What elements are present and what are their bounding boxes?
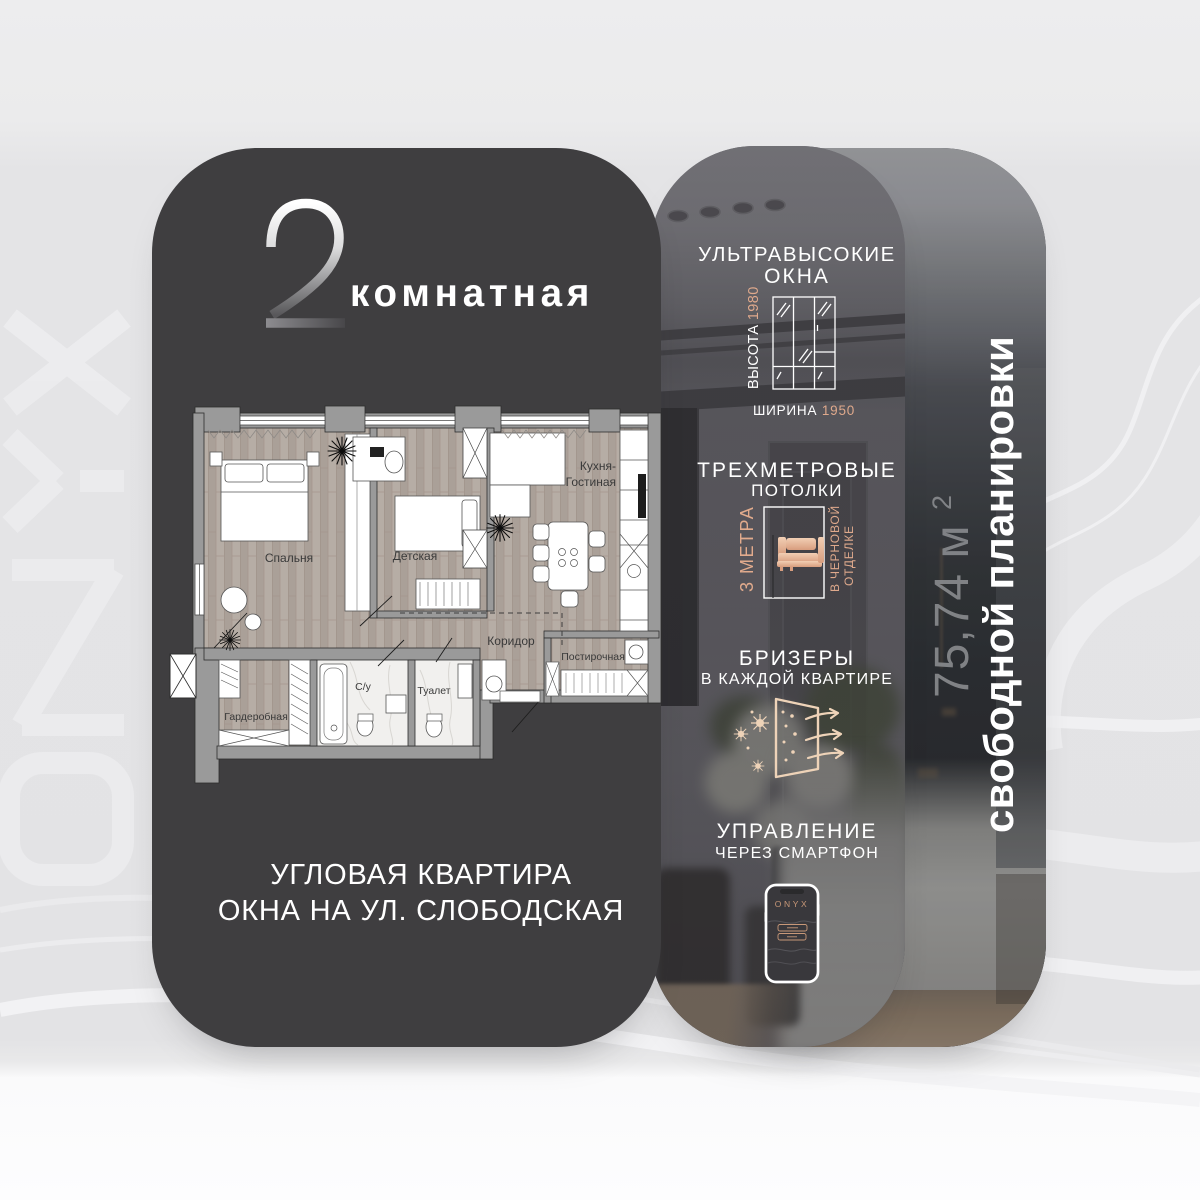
svg-text:ЧЕРЕЗ СМАРТФОН: ЧЕРЕЗ СМАРТФОН (715, 845, 879, 862)
svg-text:ОКНА НА УЛ. СЛОБОДСКАЯ: ОКНА НА УЛ. СЛОБОДСКАЯ (218, 895, 624, 927)
svg-text:УПРАВЛЕНИЕ: УПРАВЛЕНИЕ (717, 820, 878, 843)
svg-text:ШИРИНА 1950: ШИРИНА 1950 (753, 403, 855, 418)
svg-text:В КАЖДОЙ КВАРТИРЕ: В КАЖДОЙ КВАРТИРЕ (701, 669, 893, 688)
svg-text:Кухня-: Кухня- (580, 459, 616, 473)
svg-text:ТРЕХМЕТРОВЫЕ: ТРЕХМЕТРОВЫЕ (697, 459, 897, 482)
svg-text:ПОТОЛКИ: ПОТОЛКИ (751, 481, 843, 500)
svg-text:3 МЕТРА: 3 МЕТРА (737, 506, 757, 592)
svg-text:комнатная: комнатная (350, 272, 594, 315)
svg-text:БРИЗЕРЫ: БРИЗЕРЫ (739, 647, 855, 670)
svg-text:С/у: С/у (355, 681, 372, 693)
svg-text:Гостиная: Гостиная (566, 475, 616, 489)
svg-text:ВЫСОТА 1980: ВЫСОТА 1980 (746, 286, 762, 389)
svg-text:ONYX: ONYX (775, 899, 810, 909)
svg-text:Коридор: Коридор (487, 634, 535, 648)
svg-text:Детская: Детская (393, 549, 437, 563)
svg-text:Туалет: Туалет (417, 685, 450, 697)
svg-text:Постирочная: Постирочная (561, 651, 625, 663)
svg-text:ОКНА: ОКНА (764, 265, 830, 288)
svg-text:В ЧЕРНОВОЙ: В ЧЕРНОВОЙ (827, 505, 842, 592)
svg-text:2: 2 (927, 495, 957, 510)
svg-text:УГЛОВАЯ КВАРТИРА: УГЛОВАЯ КВАРТИРА (270, 859, 572, 891)
svg-text:Гардеробная: Гардеробная (224, 711, 288, 723)
svg-text:свободной планировки: свободной планировки (975, 336, 1022, 833)
svg-text:ОТДЕЛКЕ: ОТДЕЛКЕ (842, 525, 856, 586)
svg-text:УЛЬТРАВЫСОКИЕ: УЛЬТРАВЫСОКИЕ (698, 243, 896, 266)
svg-text:Спальня: Спальня (265, 551, 313, 565)
svg-text:75,74 м: 75,74 м (926, 525, 979, 698)
